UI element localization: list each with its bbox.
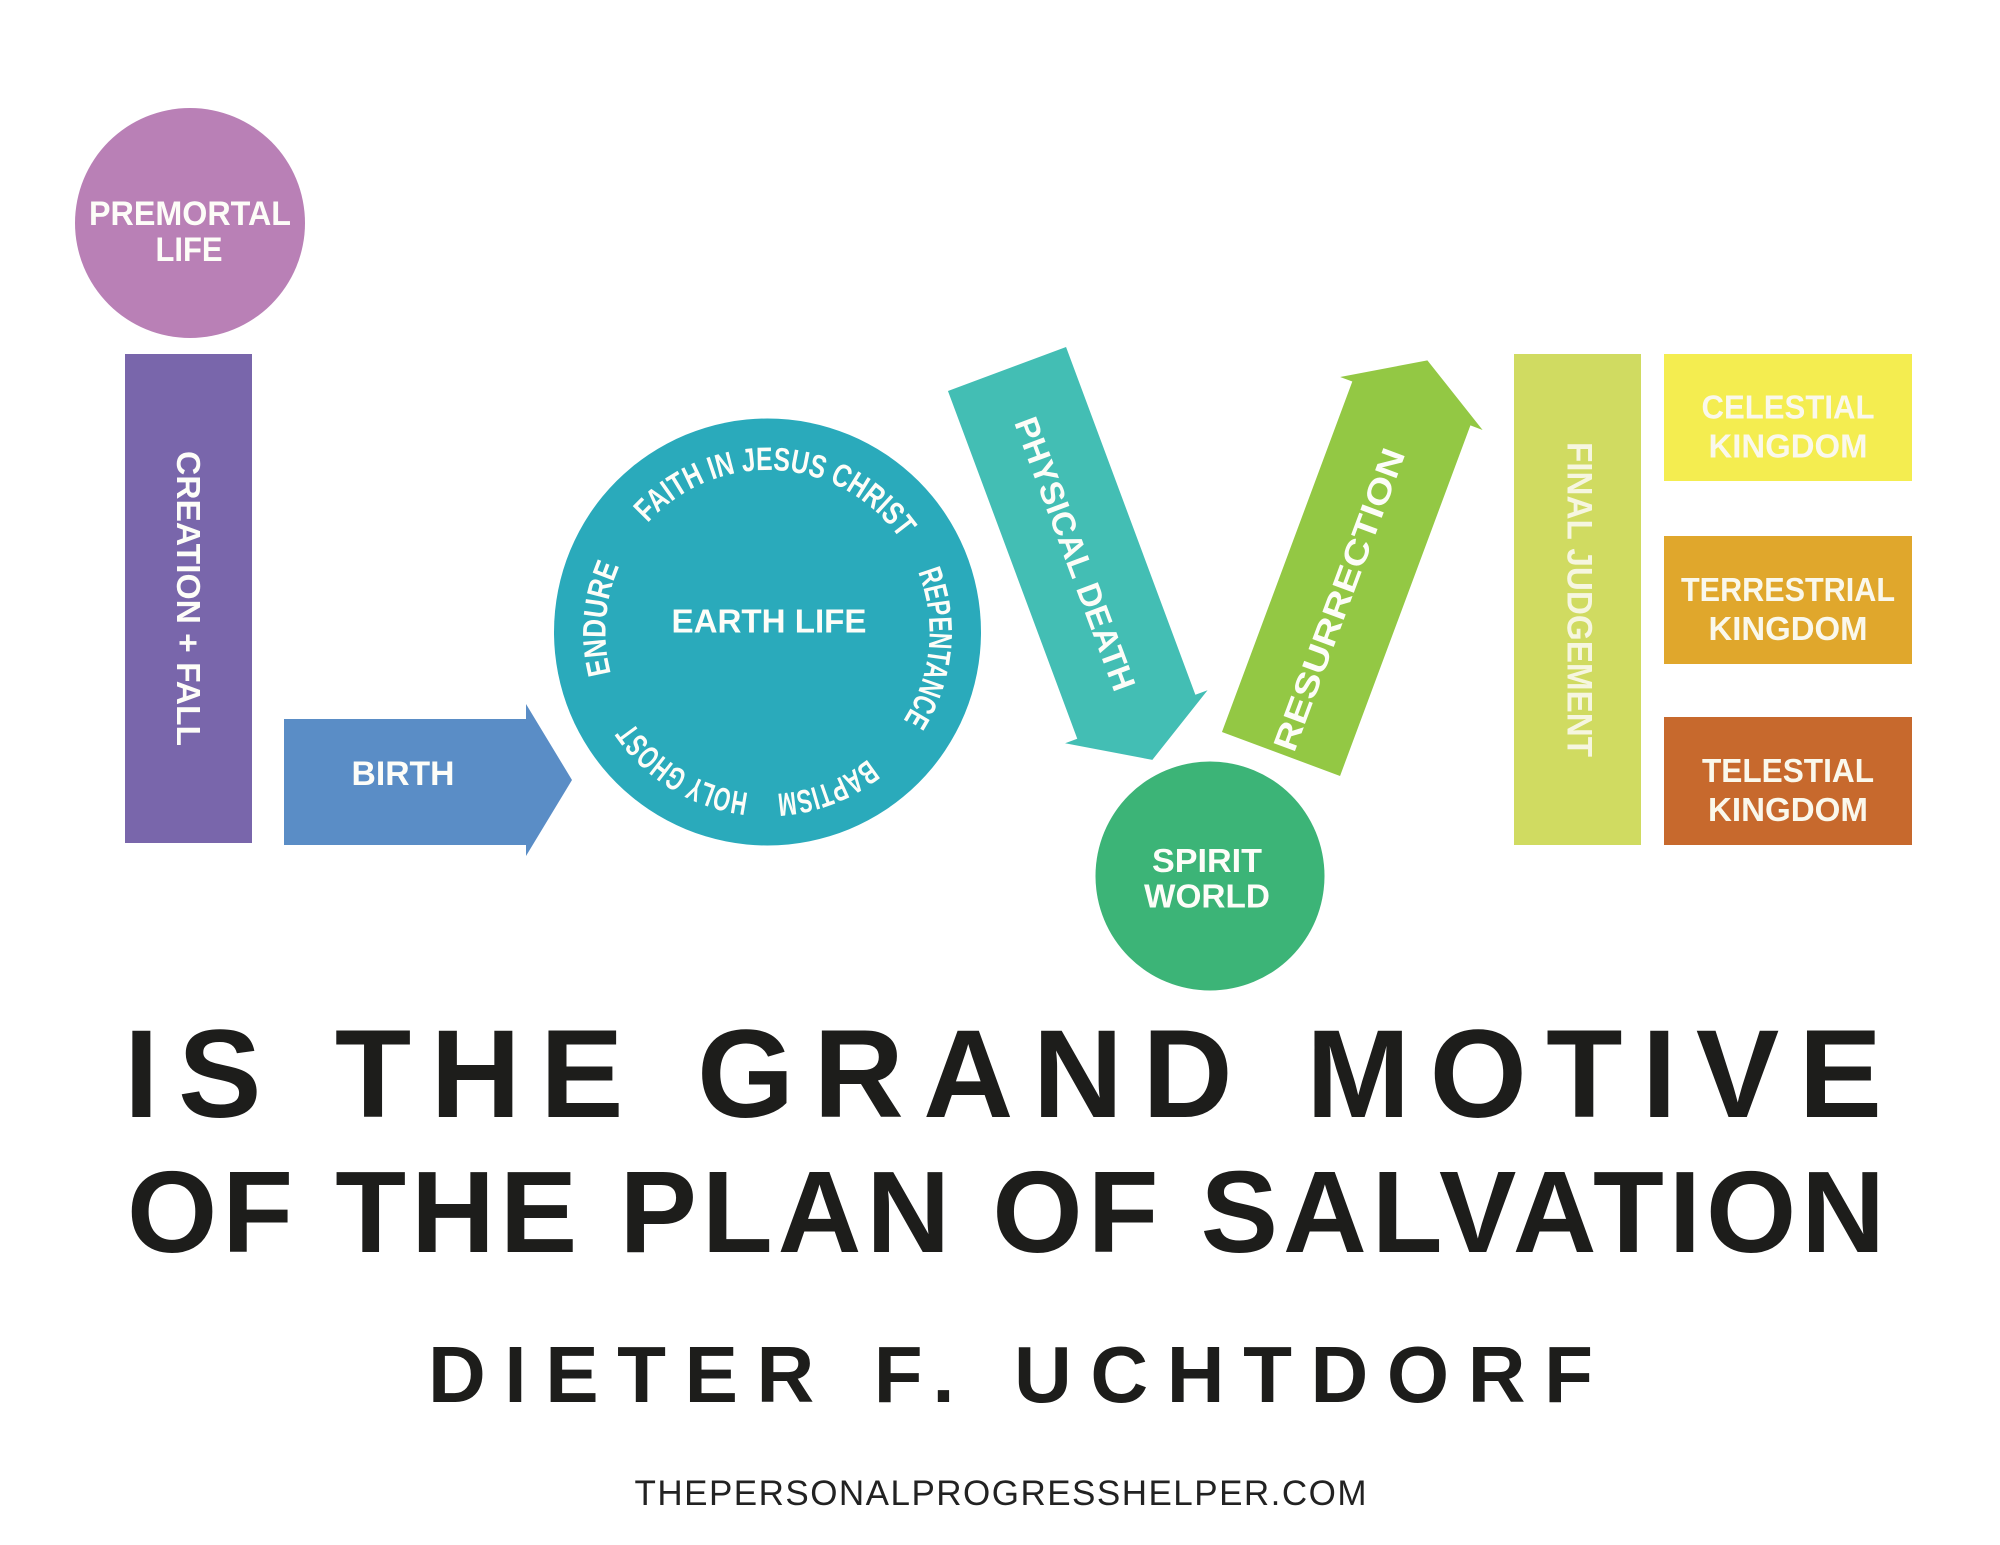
- svg-text:LIFE: LIFE: [156, 231, 223, 269]
- svg-text:EARTH LIFE: EARTH LIFE: [672, 603, 867, 640]
- svg-text:FINAL JUDGEMENT: FINAL JUDGEMENT: [1560, 442, 1599, 757]
- svg-text:IS THE GRAND MOTIVE: IS THE GRAND MOTIVE: [124, 1005, 1882, 1144]
- svg-text:KINGDOM: KINGDOM: [1708, 791, 1868, 828]
- svg-text:PREMORTAL: PREMORTAL: [89, 195, 291, 233]
- svg-text:TERRESTRIAL: TERRESTRIAL: [1681, 571, 1895, 608]
- svg-text:SPIRIT: SPIRIT: [1152, 842, 1262, 879]
- svg-text:BIRTH: BIRTH: [352, 755, 455, 793]
- svg-text:WORLD: WORLD: [1144, 878, 1270, 915]
- svg-text:CELESTIAL: CELESTIAL: [1702, 389, 1875, 426]
- svg-text:KINGDOM: KINGDOM: [1709, 610, 1868, 647]
- svg-text:KINGDOM: KINGDOM: [1709, 428, 1868, 465]
- svg-text:CREATION + FALL: CREATION + FALL: [170, 451, 207, 746]
- svg-text:OF THE PLAN OF SALVATION: OF THE PLAN OF SALVATION: [127, 1147, 1885, 1277]
- svg-text:THEPERSONALPROGRESSHELPER.COM: THEPERSONALPROGRESSHELPER.COM: [635, 1474, 1367, 1513]
- svg-text:TELESTIAL: TELESTIAL: [1702, 752, 1874, 789]
